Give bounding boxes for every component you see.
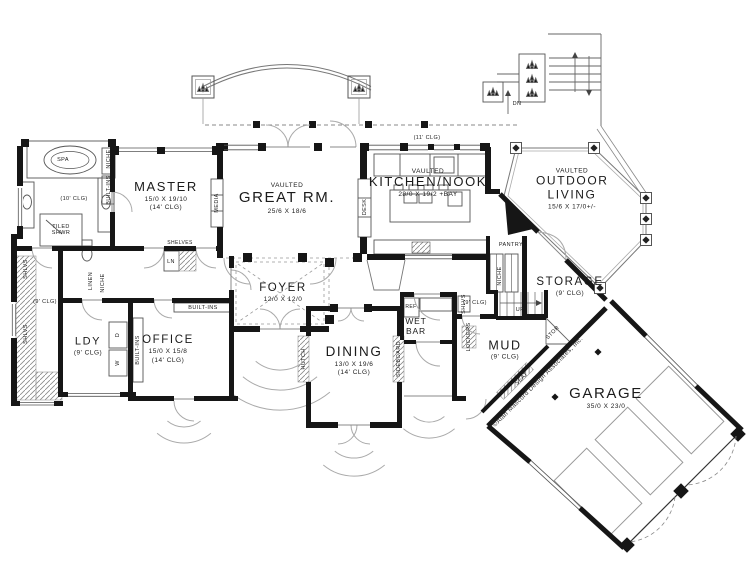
sideboard-label: SIDEBOARD [396,341,402,377]
room-foyer: FOYER 12/0 X 12/0 [259,282,307,304]
room-dims: 15/6 X 17/0+/- [536,204,608,211]
room-name: GARAGE [569,385,643,402]
shelves-label: SHLVS [23,324,29,344]
bath-ceiling-label: (10' CLG) [60,196,87,202]
shelves-full-label: SHELVES [167,241,193,247]
car-bay [636,366,724,454]
stairs-up-label: UP [516,307,524,313]
shelves-label: SHLVS [461,294,467,314]
garage-wing [551,348,745,552]
desk-label: DESK [362,199,368,216]
room-great: VAULTED GREAT RM. 25/6 X 18/6 [239,181,335,215]
dryer-label: D [115,333,121,337]
room-ceiling: (9' CLG) [488,354,521,361]
pantry-label: PANTRY [499,242,523,248]
hall-shelves [179,251,196,271]
room-outdoor-living: VAULTED OUTDOOR LIVING 15/6 X 17/0+/- [536,167,608,212]
room-name: DINING [326,344,383,360]
room-dining: DINING 13/0 X 19/6 (14' CLG) [326,344,383,376]
room-name: GREAT RM. [239,189,335,206]
room-name: KITCHEN/NOOK [369,176,487,191]
room-ceiling: (9' CLG) [74,349,102,356]
entry-arch [192,65,520,129]
room-name: MASTER [134,180,198,195]
ref-label: REF [405,305,416,311]
room-storage: STORAGE (9' CLG) [536,276,603,298]
built-ins-label: BUILT-INS [135,335,141,364]
room-prefix: VAULTED [239,182,335,189]
linen-sm-label: LN [167,259,175,265]
room-name: STORAGE [536,276,603,289]
room-dims: 15/0 X 19/10 [134,196,198,203]
room-kitchen: VAULTED KITCHEN/NOOK 28/0 X 19/2 +BAY [369,167,487,199]
cooktop-icon [412,242,430,253]
room-dims: 25/6 X 18/6 [239,208,335,215]
car-bay [595,407,683,495]
toilet-icon [82,240,92,246]
room-name: OUTDOOR LIVING [536,175,608,203]
built-ins-label: BUILT-INS [188,305,217,311]
linen-label: LINEN [88,272,94,290]
room-mud: MUD (9' CLG) [488,339,521,362]
room-ceiling: (14' CLG) [142,357,194,364]
spa-tub [44,146,96,174]
room-wet-bar: WET BAR [402,317,430,337]
niche-label: NICHE [497,266,503,285]
sink-icon [23,195,32,209]
porch-ceiling-label: (11' CLG) [414,135,441,141]
room-name: WET BAR [402,317,430,337]
room-ceiling: (14' CLG) [134,204,198,211]
room-name: MUD [488,339,521,353]
nook-bay [367,260,405,290]
niche-label: NICHE [100,273,106,292]
niche-label: NICHE [106,149,112,168]
room-name: FOYER [259,282,307,295]
room-garage: GARAGE 35/0 X 23/0 [569,385,643,411]
shelves-label: SHLVS [23,259,29,279]
media-label: MEDIA [214,193,220,212]
kitchen-lower-counter [374,240,487,254]
room-name: LDY [74,335,102,348]
room-dims: 13/0 X 19/6 [326,360,383,367]
hutch-label: HUTCH [301,348,307,369]
spa-label: SPA [57,157,69,163]
closet-ceiling-label: (9' CLG) [33,299,57,305]
deck-posts [511,143,652,294]
tiled-shower-label: TILED SHWR [48,224,74,236]
room-office: OFFICE 15/0 X 15/8 (14' CLG) [142,334,194,364]
floor-plan: MASTER 15/0 X 19/10 (14' CLG) VAULTED GR… [0,0,750,565]
room-ceiling: (9' CLG) [536,290,603,297]
lockers-label: LOCKERS [466,322,472,351]
room-master: MASTER 15/0 X 19/10 (14' CLG) [134,180,198,212]
room-name: OFFICE [142,334,194,347]
room-laundry: LDY (9' CLG) [74,335,102,356]
washer-label: W [115,360,121,366]
room-dims: 15/0 X 15/8 [142,348,194,355]
room-dims: 12/0 X 12/0 [259,296,307,303]
room-ceiling: (14' CLG) [326,369,383,376]
stairs-dn-label: DN [513,101,522,107]
room-dims: 35/0 X 23/0 [569,403,643,410]
built-ins-label: BUILT-INS [106,175,112,204]
room-dims: 28/0 X 19/2 +BAY [369,191,487,198]
plan-drawing [0,0,750,565]
wetbar-counter [420,298,452,311]
